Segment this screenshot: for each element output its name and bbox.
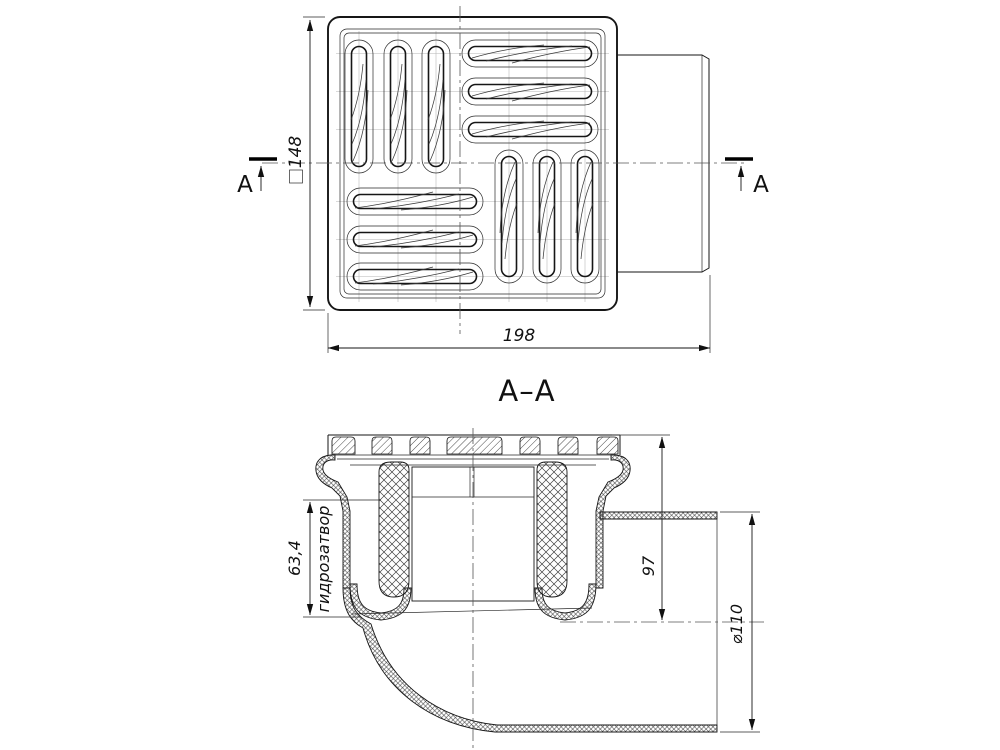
section-view: A–A <box>285 374 764 748</box>
cut-letter-right: A <box>753 172 769 198</box>
axis-dim-label: 97 <box>639 555 658 576</box>
dim-198: 198 <box>328 275 710 353</box>
technical-drawing: A A 148 198 A–A <box>0 0 1000 750</box>
slot-axis-lines <box>336 31 609 302</box>
top-view: A A 148 198 <box>237 6 769 353</box>
dim-width-label: 198 <box>503 326 536 346</box>
dim-seal: 63,4 гидрозатвор <box>285 500 381 617</box>
cutting-plane-left: A <box>237 159 277 198</box>
dim-148: 148 <box>286 17 325 310</box>
grate-slots <box>345 40 599 290</box>
outlet-pipe-plan <box>617 55 709 272</box>
square-symbol <box>290 170 303 183</box>
seal-name-label: гидрозатвор <box>314 506 333 613</box>
diameter-dim-label: ⌀110 <box>727 604 746 644</box>
grate-section <box>328 435 620 465</box>
pipe-top-wall <box>600 512 717 519</box>
cutting-plane-right: A <box>725 159 769 198</box>
cut-letter-left: A <box>237 172 253 198</box>
drawing-sheet: A A 148 198 A–A <box>0 0 1000 750</box>
dim-height-label: 148 <box>286 136 306 169</box>
section-title: A–A <box>498 374 555 408</box>
seal-dim-label: 63,4 <box>285 540 304 576</box>
